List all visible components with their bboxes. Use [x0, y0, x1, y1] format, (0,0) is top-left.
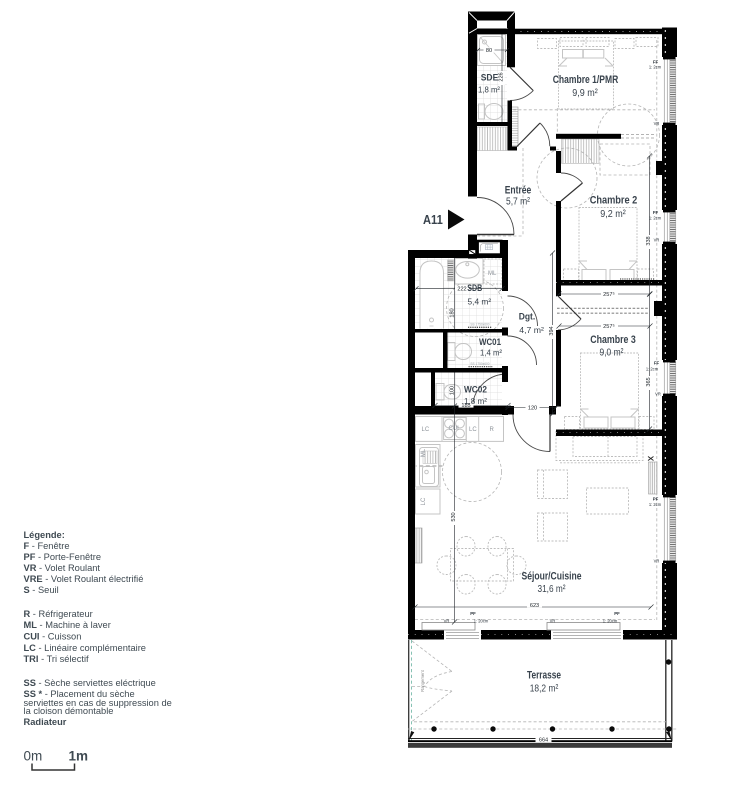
- svg-text:PF: PF: [470, 611, 476, 616]
- svg-text:FF: FF: [653, 210, 659, 215]
- svg-text:SDE: SDE: [481, 72, 499, 82]
- svg-text:9,9 m²: 9,9 m²: [572, 88, 598, 99]
- svg-text:100: 100: [450, 386, 456, 395]
- svg-text:Terrasse: Terrasse: [527, 670, 561, 682]
- svg-text:LC: LC: [422, 427, 430, 433]
- svg-text:9,2 m²: 9,2 m²: [600, 209, 626, 220]
- svg-text:5,4 m²: 5,4 m²: [468, 296, 492, 306]
- svg-text:623: 623: [530, 603, 539, 609]
- svg-text:A11: A11: [423, 212, 443, 227]
- svg-text:1: 2cm: 1: 2cm: [646, 367, 659, 372]
- svg-text:338: 338: [646, 236, 652, 245]
- svg-text:WC01: WC01: [479, 337, 501, 347]
- svg-text:ML: ML: [488, 271, 497, 277]
- svg-text:LC: LC: [421, 497, 427, 505]
- svg-text:Dgt.: Dgt.: [519, 312, 536, 322]
- svg-text:FF: FF: [654, 361, 660, 366]
- svg-text:222: 222: [457, 287, 466, 293]
- svg-text:1m: 1m: [69, 749, 89, 764]
- svg-text:VR: VR: [550, 619, 556, 624]
- svg-text:CUI: CUI: [449, 426, 460, 432]
- svg-text:180: 180: [450, 308, 456, 317]
- svg-text:PF - Porte-Fenêtre: PF - Porte-Fenêtre: [24, 552, 102, 562]
- svg-text:1: 2cm: 1: 2cm: [649, 502, 662, 507]
- svg-text:PF: PF: [614, 611, 620, 616]
- svg-text:VR - Volet Roulant: VR - Volet Roulant: [24, 563, 101, 573]
- svg-text:0m: 0m: [24, 749, 43, 764]
- svg-text:SS 1750x600: SS 1750x600: [470, 323, 489, 327]
- svg-text:365: 365: [646, 377, 652, 386]
- svg-text:VR: VR: [654, 121, 660, 126]
- svg-text:ML - Machine à laver: ML - Machine à laver: [24, 620, 111, 630]
- svg-text:31,6 m²: 31,6 m²: [538, 584, 567, 595]
- svg-text:1,8 m²: 1,8 m²: [464, 396, 487, 406]
- svg-text:LC - Linéaire complémentaire: LC - Linéaire complémentaire: [24, 643, 146, 653]
- svg-text:Chambre 2: Chambre 2: [590, 195, 638, 207]
- svg-text:R - Réfrigerateur: R - Réfrigerateur: [24, 609, 93, 619]
- svg-text:257⁵: 257⁵: [603, 291, 615, 298]
- svg-text:la cloison démontable: la cloison démontable: [24, 706, 114, 716]
- svg-text:SS 1750x600: SS 1750x600: [470, 362, 489, 366]
- svg-text:226: 226: [499, 72, 505, 81]
- svg-text:TRI - Tri sélectif: TRI - Tri sélectif: [24, 654, 90, 664]
- svg-text:ML: ML: [421, 448, 427, 457]
- svg-text:WC02: WC02: [464, 385, 487, 395]
- svg-text:9,0 m²: 9,0 m²: [600, 348, 625, 359]
- svg-text:R: R: [490, 427, 495, 433]
- svg-text:Chambre 1/PMR: Chambre 1/PMR: [553, 74, 619, 86]
- svg-text:530: 530: [451, 512, 457, 521]
- svg-text:Légende:: Légende:: [24, 530, 65, 540]
- svg-text:80: 80: [486, 48, 492, 54]
- svg-text:SS - Sèche serviettes eléctriq: SS - Sèche serviettes eléctrique: [24, 678, 156, 688]
- svg-text:1: 2cm: 1: 2cm: [649, 65, 662, 70]
- svg-text:F - Fenêtre: F - Fenêtre: [24, 541, 70, 551]
- svg-text:394: 394: [549, 326, 555, 335]
- svg-text:5,7 m²: 5,7 m²: [506, 197, 531, 208]
- svg-text:S - Seuil: S - Seuil: [24, 585, 59, 595]
- svg-text:257⁵: 257⁵: [603, 323, 615, 330]
- svg-text:Chambre 3: Chambre 3: [590, 334, 636, 346]
- svg-text:Séjour/Cuisine: Séjour/Cuisine: [522, 570, 582, 582]
- svg-text:664: 664: [539, 737, 548, 743]
- svg-text:1,4 m²: 1,4 m²: [480, 347, 502, 357]
- svg-text:1: 20cm: 1: 20cm: [603, 619, 618, 624]
- svg-text:VR: VR: [654, 238, 660, 243]
- svg-text:PF: PF: [653, 497, 659, 502]
- svg-text:4,7 m²: 4,7 m²: [519, 325, 544, 335]
- svg-text:SDB: SDB: [467, 283, 482, 293]
- svg-text:VRE - Volet Roulant électrifié: VRE - Volet Roulant électrifié: [24, 574, 144, 584]
- svg-text:Radiateur: Radiateur: [24, 717, 67, 727]
- svg-text:1: 2cm: 1: 2cm: [649, 216, 662, 221]
- svg-text:Rangement: Rangement: [420, 669, 425, 691]
- svg-text:1: 20cm: 1: 20cm: [474, 619, 489, 624]
- svg-text:VR: VR: [655, 392, 661, 397]
- svg-text:18,2 m²: 18,2 m²: [530, 683, 559, 694]
- svg-text:120: 120: [528, 405, 537, 411]
- svg-text:VR: VR: [444, 619, 450, 624]
- svg-text:CUI - Cuisson: CUI - Cuisson: [24, 632, 82, 642]
- svg-text:Entrée: Entrée: [505, 184, 532, 196]
- svg-text:LC: LC: [469, 427, 477, 433]
- svg-text:VR: VR: [654, 559, 660, 564]
- svg-text:1,8 m²: 1,8 m²: [478, 84, 500, 94]
